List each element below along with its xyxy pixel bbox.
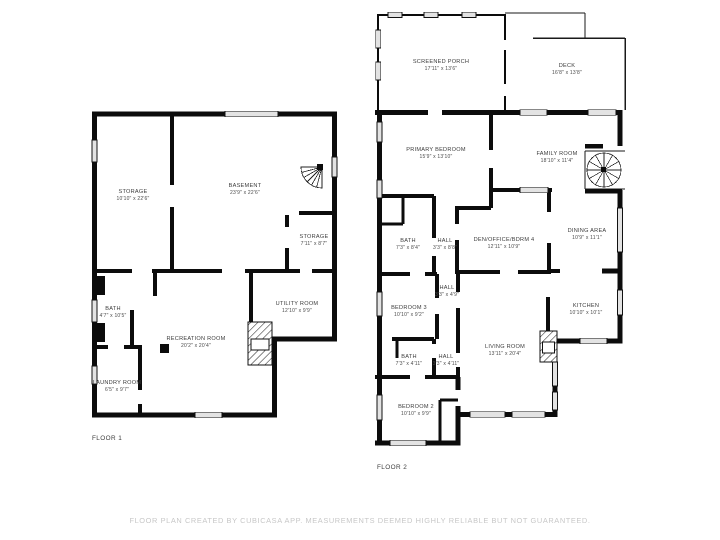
room-label-storage-upper: STORAGE (118, 189, 147, 195)
room-label-recreation: RECREATION ROOM (167, 336, 226, 342)
room-label-bath-f1: BATH (105, 306, 121, 312)
room-label-basement: BASEMENT (229, 183, 262, 189)
room-label-hall-middle: HALL (440, 285, 455, 291)
room-dims-den-office: 12'11" x 10'9" (488, 244, 521, 250)
staircase-hatched-floor2 (540, 331, 557, 362)
room-label-storage-lower: STORAGE (299, 234, 328, 240)
room-label-laundry: LAUNDRY ROOM (93, 380, 142, 386)
room-dims-deck: 16'8" x 13'8" (552, 70, 582, 76)
room-dims-recreation: 20'2" x 20'4" (181, 343, 211, 349)
room-dims-hall-middle: 3'3" x 4'9" (435, 292, 459, 298)
room-dims-storage-lower: 7'11" x 8'7" (301, 241, 328, 247)
room-label-deck: DECK (559, 63, 576, 69)
room-label-bedroom-3: BEDROOM 3 (391, 305, 427, 311)
room-dims-primary-bedroom: 15'9" x 13'10" (419, 154, 452, 160)
floorplan-image: STORAGE 10'10" x 22'6" BASEMENT 23'9" x … (0, 0, 720, 540)
room-label-kitchen: KITCHEN (573, 303, 599, 309)
room-label-bath-lower: BATH (401, 354, 417, 360)
room-label-family-room: FAMILY ROOM (536, 151, 577, 157)
room-dims-laundry: 6'5" x 9'7" (105, 387, 129, 393)
room-label-primary-bedroom: PRIMARY BEDROOM (406, 147, 466, 153)
room-dims-bath-f1: 4'7" x 10'5" (99, 313, 126, 319)
room-label-dining-area: DINING AREA (568, 228, 607, 234)
room-dims-hall-lower: 3'3" x 4'11" (433, 361, 460, 367)
room-label-hall-lower: HALL (439, 354, 454, 360)
room-label-living-room: LIVING ROOM (485, 344, 525, 350)
room-dims-living-room: 13'11" x 20'4" (489, 351, 522, 357)
room-dims-bedroom-2: 10'10" x 9'9" (401, 411, 431, 417)
room-label-den-office: DEN/OFFICE/BDRM 4 (474, 237, 535, 243)
support-post (160, 344, 169, 353)
room-dims-storage-upper: 10'10" x 22'6" (116, 196, 149, 202)
floor1-caption: FLOOR 1 (92, 435, 122, 442)
room-label-hall-upper: HALL (438, 238, 453, 244)
room-label-bath-upper: BATH (400, 238, 416, 244)
staircase-hatched-floor1 (248, 322, 272, 365)
room-dims-dining-area: 10'9" x 11'1" (572, 235, 602, 241)
room-label-utility: UTILITY ROOM (276, 301, 319, 307)
room-label-screened-porch: SCREENED PORCH (413, 59, 469, 65)
room-label-bedroom-2: BEDROOM 2 (398, 404, 434, 410)
room-dims-screened-porch: 17'11" x 13'6" (425, 66, 458, 72)
room-dims-family-room: 18'10" x 11'4" (541, 158, 574, 164)
footer-disclaimer: FLOOR PLAN CREATED BY CUBICASA APP. MEAS… (129, 516, 590, 525)
room-dims-bath-lower: 7'3" x 4'11" (396, 361, 423, 367)
room-dims-bath-upper: 7'3" x 8'4" (396, 245, 420, 251)
floor2-caption: FLOOR 2 (377, 464, 407, 471)
room-dims-basement: 23'9" x 22'6" (230, 190, 260, 196)
room-dims-utility: 12'10" x 9'9" (282, 308, 312, 314)
room-dims-bedroom-3: 10'10" x 9'2" (394, 312, 424, 318)
room-dims-hall-upper: 3'3" x 8'8" (433, 245, 457, 251)
room-dims-kitchen: 10'10" x 10'1" (569, 310, 602, 316)
